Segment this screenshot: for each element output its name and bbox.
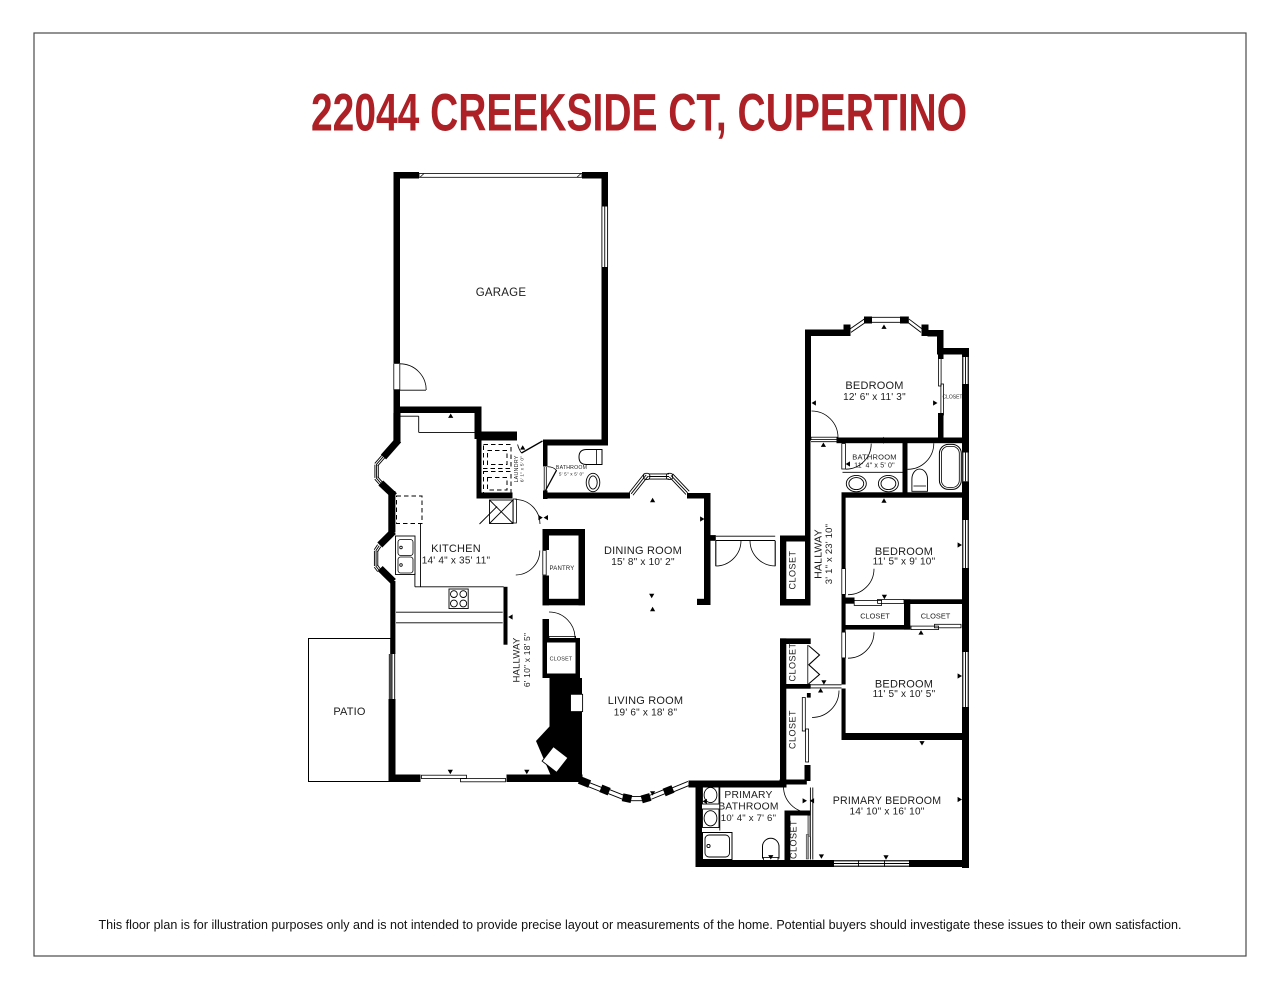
svg-text:BEDROOM: BEDROOM <box>845 380 903 392</box>
svg-text:BATHROOM: BATHROOM <box>718 802 778 813</box>
svg-text:HALLWAY: HALLWAY <box>813 529 825 579</box>
svg-text:CLOSET: CLOSET <box>788 710 798 749</box>
svg-text:5' 5" x 5' 0": 5' 5" x 5' 0" <box>559 472 584 477</box>
svg-text:PRIMARY BEDROOM: PRIMARY BEDROOM <box>833 795 942 807</box>
svg-text:BATHROOM: BATHROOM <box>852 453 896 462</box>
svg-text:CLOSET: CLOSET <box>788 550 798 589</box>
svg-text:10' 4" x 7' 6": 10' 4" x 7' 6" <box>721 813 776 824</box>
svg-text:CLOSET: CLOSET <box>942 395 962 401</box>
svg-text:12' 6" x 11' 3": 12' 6" x 11' 3" <box>843 392 906 403</box>
svg-text:22044 CREEKSIDE CT, CUPERTINO: 22044 CREEKSIDE CT, CUPERTINO <box>311 84 967 143</box>
svg-text:19' 6" x 18' 8": 19' 6" x 18' 8" <box>614 708 678 719</box>
svg-text:GARAGE: GARAGE <box>476 287 527 299</box>
svg-text:CLOSET: CLOSET <box>550 657 573 663</box>
svg-text:3' 1" x 23' 10": 3' 1" x 23' 10" <box>824 524 835 584</box>
svg-text:LAUNDRY: LAUNDRY <box>514 455 520 482</box>
svg-text:CLOSET: CLOSET <box>788 642 798 681</box>
svg-text:11' 5" x 9' 10": 11' 5" x 9' 10" <box>873 557 936 568</box>
svg-text:CLOSET: CLOSET <box>921 612 951 621</box>
svg-text:KITCHEN: KITCHEN <box>431 543 481 555</box>
svg-text:HALLWAY: HALLWAY <box>512 637 523 683</box>
svg-text:CLOSET: CLOSET <box>860 612 890 621</box>
svg-text:PANTRY: PANTRY <box>550 566 575 572</box>
svg-text:6' 1" x 5' 0": 6' 1" x 5' 0" <box>520 456 526 482</box>
svg-text:This floor plan is for illustr: This floor plan is for illustration purp… <box>99 917 1182 932</box>
svg-text:6' 10" x 18' 5": 6' 10" x 18' 5" <box>522 633 532 687</box>
svg-text:15' 8" x 10' 2": 15' 8" x 10' 2" <box>611 557 675 568</box>
svg-text:PRIMARY: PRIMARY <box>724 790 772 801</box>
svg-text:14' 10" x 16' 10": 14' 10" x 16' 10" <box>850 807 925 818</box>
svg-text:PATIO: PATIO <box>333 706 366 718</box>
svg-text:LIVING ROOM: LIVING ROOM <box>608 695 684 707</box>
svg-text:CLOSET: CLOSET <box>789 820 799 859</box>
svg-text:14' 4" x 35' 11": 14' 4" x 35' 11" <box>422 556 491 567</box>
svg-text:11' 4" x 5' 0": 11' 4" x 5' 0" <box>854 463 895 470</box>
svg-text:11' 5" x 10' 5": 11' 5" x 10' 5" <box>873 689 936 700</box>
svg-text:BATHROOM: BATHROOM <box>556 465 587 471</box>
svg-text:DINING ROOM: DINING ROOM <box>604 545 682 557</box>
